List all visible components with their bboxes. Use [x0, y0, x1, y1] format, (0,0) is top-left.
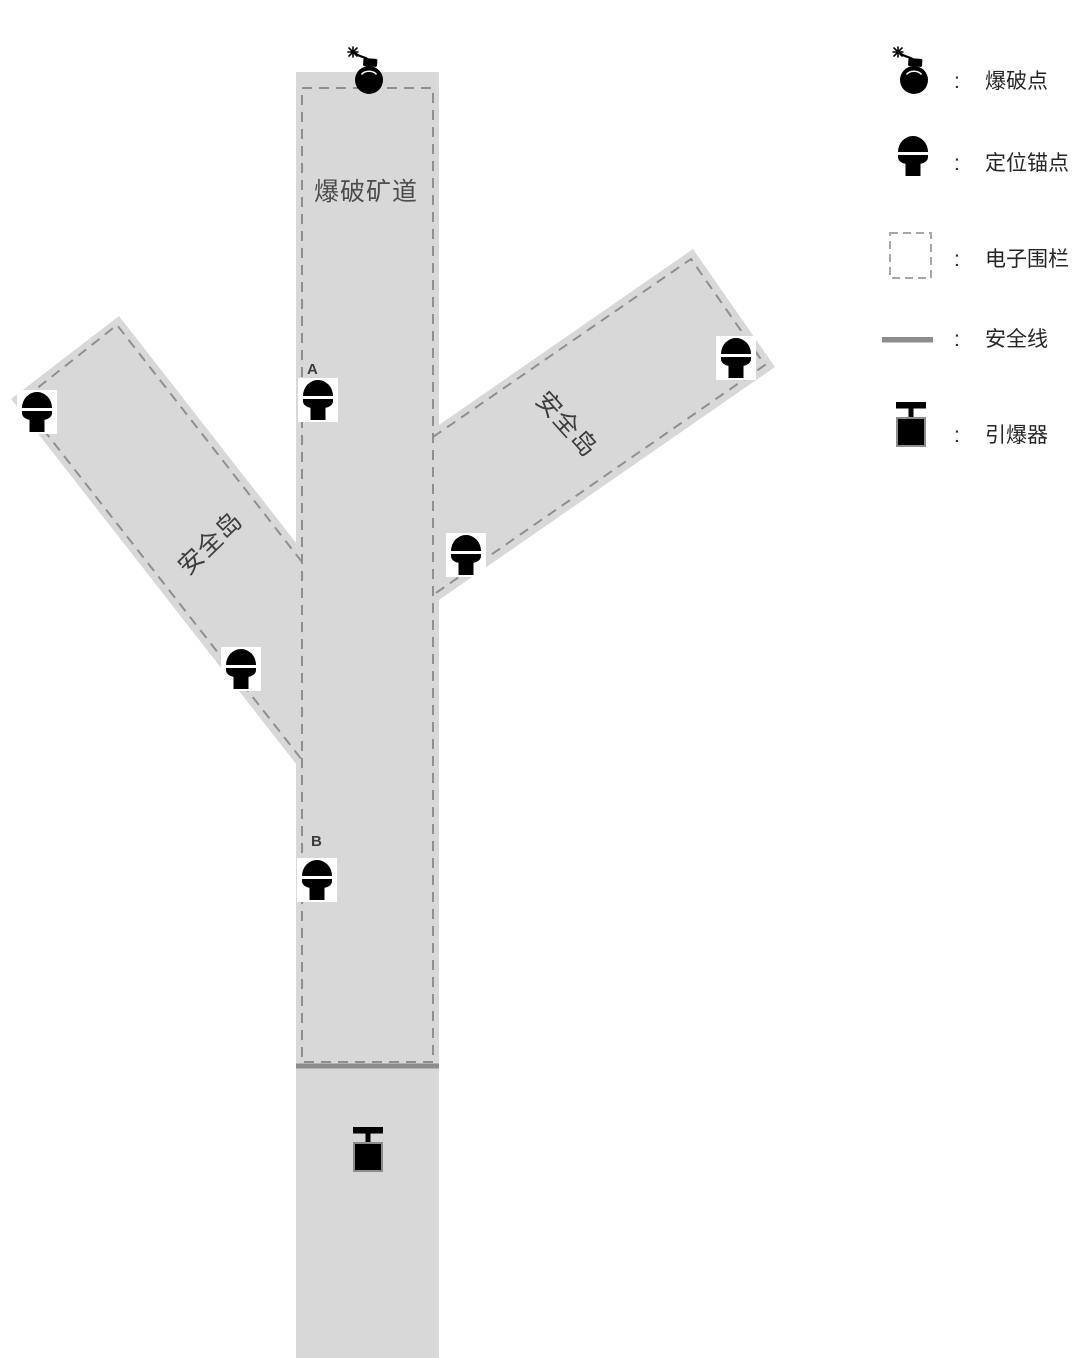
mine-blast-layout-diagram: 爆破矿道 安全岛 安全岛 A B: [0, 0, 1080, 1358]
anchor-a-label: A: [307, 361, 318, 378]
diagram-svg: 爆破矿道 安全岛 安全岛 A B: [0, 0, 1080, 1358]
safety-line-icon: [882, 337, 933, 343]
fence-icon: [890, 233, 931, 278]
legend-separator: :: [954, 248, 960, 271]
legend-item-blast-point: : 爆破点: [893, 47, 1048, 94]
legend-item-label: 安全线: [985, 328, 1048, 351]
right-safety-island-area: [436, 249, 775, 602]
legend-separator: :: [954, 424, 960, 447]
legend-item-label: 定位锚点: [985, 152, 1069, 175]
anchor-point-right-far: [716, 336, 756, 380]
legend-item-anchor-point: : 定位锚点: [898, 136, 1069, 176]
legend: : 爆破点 : 定位锚点 : 电子围栏 : 安全线 : 引爆器: [882, 47, 1069, 447]
tunnel-label: 爆破矿道: [314, 178, 418, 206]
anchor-icon: [898, 136, 928, 176]
legend-item-electronic-fence: : 电子围栏: [890, 233, 1069, 278]
legend-item-label: 爆破点: [985, 70, 1048, 93]
legend-separator: :: [954, 152, 960, 175]
detonator-icon: [896, 402, 926, 446]
anchor-point-left-mid: [221, 647, 261, 691]
anchor-point-right-mid: [446, 533, 486, 577]
legend-item-safety-line: : 安全线: [882, 328, 1048, 351]
legend-separator: :: [954, 328, 960, 351]
legend-separator: :: [954, 70, 960, 93]
legend-item-label: 引爆器: [985, 424, 1048, 447]
anchor-b-label: B: [311, 833, 322, 850]
anchor-point-left-far: [17, 390, 57, 434]
legend-item-detonator: : 引爆器: [896, 402, 1048, 447]
bomb-icon: [893, 47, 928, 94]
legend-item-label: 电子围栏: [985, 248, 1069, 271]
